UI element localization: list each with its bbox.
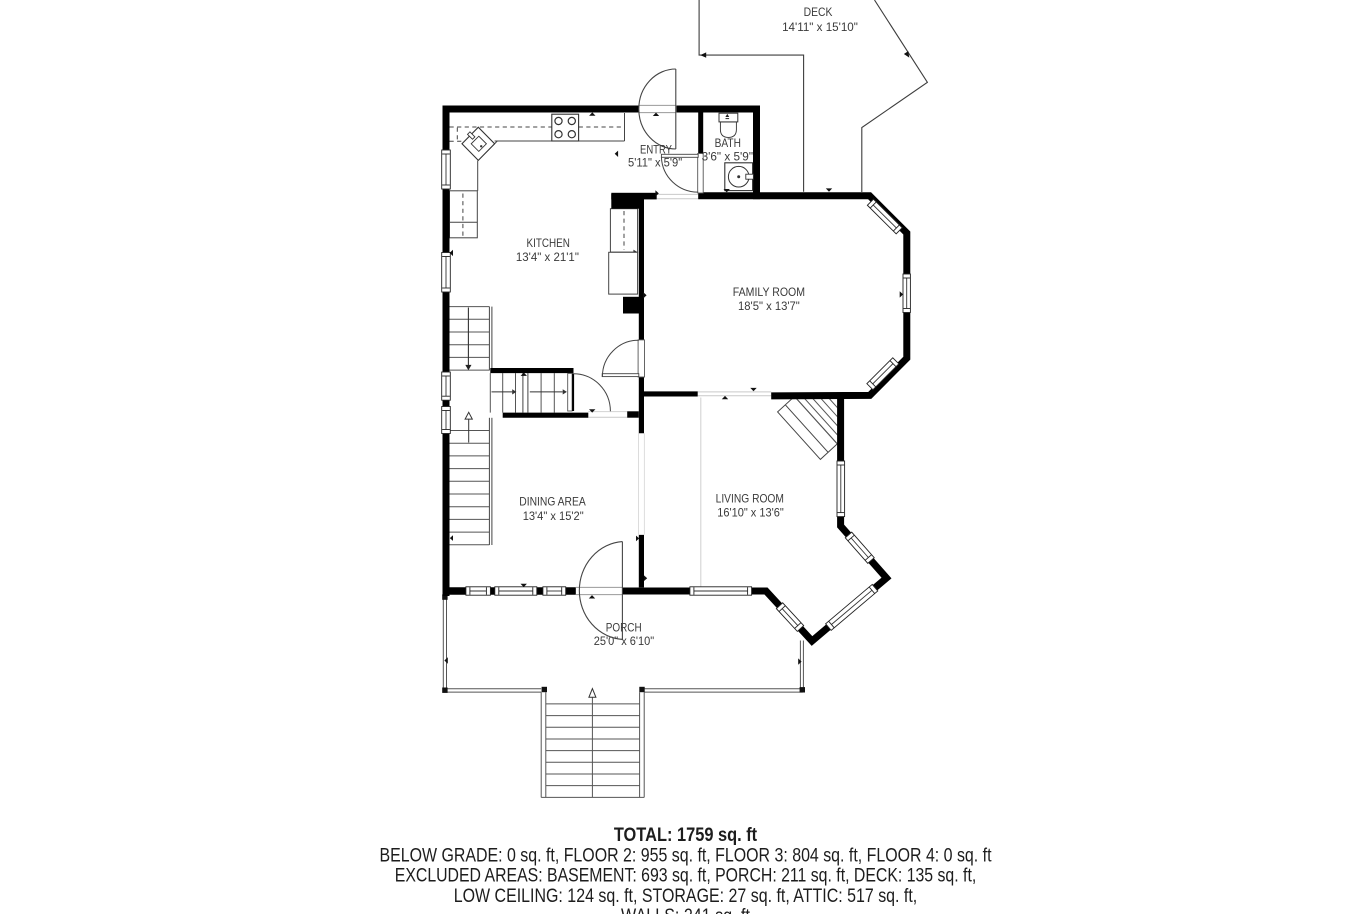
svg-text:5'11" x 5'9": 5'11" x 5'9" [628,156,682,170]
svg-text:PORCH: PORCH [606,620,642,634]
svg-text:TOTAL: 1759 sq. ft: TOTAL: 1759 sq. ft [614,825,758,846]
svg-text:3'6" x 5'9": 3'6" x 5'9" [702,150,753,164]
svg-text:13'4" x 21'1": 13'4" x 21'1" [516,250,579,264]
svg-text:DINING AREA: DINING AREA [519,495,586,509]
svg-text:FAMILY ROOM: FAMILY ROOM [733,285,805,299]
svg-text:18'5" x 13'7": 18'5" x 13'7" [738,299,800,313]
svg-text:BATH: BATH [715,136,741,150]
svg-text:KITCHEN: KITCHEN [527,236,570,250]
svg-text:LIVING ROOM: LIVING ROOM [716,492,784,506]
svg-text:13'4" x 15'2": 13'4" x 15'2" [523,509,584,523]
svg-text:DECK: DECK [804,5,833,19]
svg-text:EXCLUDED AREAS: BASEMENT: 693: EXCLUDED AREAS: BASEMENT: 693 sq. ft, PO… [395,866,977,887]
svg-text:ENTRY: ENTRY [640,143,672,157]
svg-text:WALLS: 241 sq. ft: WALLS: 241 sq. ft [621,906,751,914]
svg-text:14'11" x 15'10": 14'11" x 15'10" [782,20,858,34]
svg-text:LOW CEILING: 124 sq. ft, STORA: LOW CEILING: 124 sq. ft, STORAGE: 27 sq.… [454,886,918,907]
svg-text:BELOW GRADE: 0 sq. ft, FLOOR 2: BELOW GRADE: 0 sq. ft, FLOOR 2: 955 sq. … [380,845,993,866]
svg-text:16'10" x 13'6": 16'10" x 13'6" [717,506,784,520]
svg-text:25'0" x 6'10": 25'0" x 6'10" [594,634,654,648]
